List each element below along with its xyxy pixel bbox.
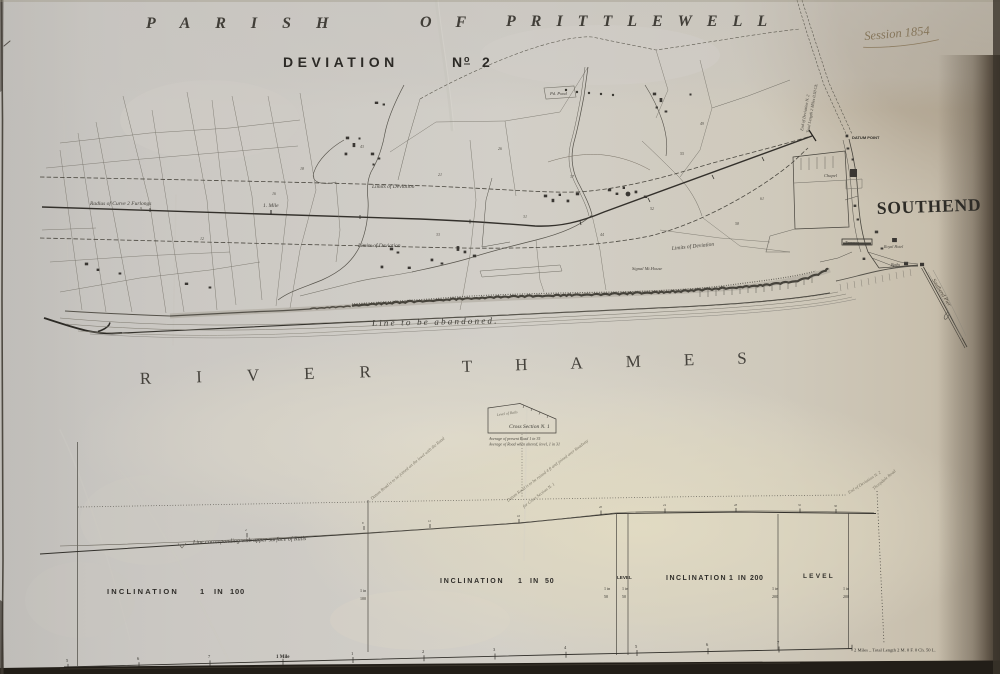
svg-text:Signal Mt.House: Signal Mt.House xyxy=(632,266,662,271)
svg-text:31: 31 xyxy=(523,214,527,219)
svg-text:50: 50 xyxy=(545,578,554,585)
svg-text:26: 26 xyxy=(498,146,502,151)
svg-text:1 in: 1 in xyxy=(604,586,610,591)
svg-text:32: 32 xyxy=(798,503,802,507)
svg-text:Radius of Curve 2 Furlongs: Radius of Curve 2 Furlongs xyxy=(89,200,151,207)
svg-text:Royal Hotel: Royal Hotel xyxy=(883,244,904,249)
svg-text:50: 50 xyxy=(604,594,608,599)
svg-text:IN: IN xyxy=(738,575,747,582)
svg-text:100: 100 xyxy=(230,587,245,596)
svg-text:12: 12 xyxy=(200,236,204,241)
svg-text:52: 52 xyxy=(650,206,654,211)
svg-text:24: 24 xyxy=(663,503,667,507)
svg-text:DEVIATION: DEVIATION xyxy=(283,54,399,70)
svg-text:1: 1 xyxy=(729,575,733,582)
svg-text:16: 16 xyxy=(272,191,276,196)
svg-text:12: 12 xyxy=(428,519,432,523)
svg-text:33: 33 xyxy=(436,232,440,237)
svg-text:PRITTLEWELL: PRITTLEWELL xyxy=(505,13,782,30)
svg-text:16: 16 xyxy=(517,514,521,518)
svg-text:LEVEL: LEVEL xyxy=(803,573,835,580)
svg-text:Limits of Deviation: Limits of Deviation xyxy=(357,242,401,249)
svg-text:1 Mile: 1 Mile xyxy=(276,655,290,660)
svg-text:1 in: 1 in xyxy=(772,586,778,591)
svg-text:1 in: 1 in xyxy=(360,588,366,593)
svg-text:Terrace: Terrace xyxy=(845,240,859,245)
svg-text:DATUM POINT: DATUM POINT xyxy=(852,135,880,140)
svg-text:43: 43 xyxy=(360,144,364,149)
svg-text:LEVEL: LEVEL xyxy=(617,575,632,580)
svg-text:58: 58 xyxy=(735,221,739,226)
svg-text:36: 36 xyxy=(834,504,838,508)
svg-text:INCLINATION: INCLINATION xyxy=(107,587,179,596)
svg-text:2: 2 xyxy=(482,54,490,70)
svg-text:IN: IN xyxy=(530,578,539,585)
svg-text:200: 200 xyxy=(750,575,763,582)
svg-text:61: 61 xyxy=(760,196,764,201)
svg-text:28: 28 xyxy=(734,503,738,507)
svg-text:Pd. Pond: Pd. Pond xyxy=(549,91,567,96)
svg-text:Average of present Road 1 in 3: Average of present Road 1 in 35 xyxy=(488,436,540,441)
svg-text:200: 200 xyxy=(772,594,778,599)
svg-text:1: 1 xyxy=(351,651,353,656)
svg-text:Baths: Baths xyxy=(891,262,901,267)
svg-text:1. Mile: 1. Mile xyxy=(263,203,279,209)
svg-text:Cross Section N. 1: Cross Section N. 1 xyxy=(509,424,550,430)
svg-text:2: 2 xyxy=(422,649,424,654)
svg-text:IN: IN xyxy=(214,587,224,596)
svg-text:1: 1 xyxy=(518,578,522,585)
svg-text:INCLINATION: INCLINATION xyxy=(440,578,504,585)
svg-text:o: o xyxy=(464,54,470,64)
svg-text:Limits of Deviation: Limits of Deviation xyxy=(371,183,415,190)
svg-text:1 in: 1 in xyxy=(843,586,849,591)
svg-text:50: 50 xyxy=(622,594,626,599)
svg-text:SOUTHEND: SOUTHEND xyxy=(876,194,981,218)
svg-text:OF: OF xyxy=(420,14,490,31)
svg-text:44: 44 xyxy=(600,232,604,237)
svg-text:Chapel: Chapel xyxy=(824,173,838,178)
svg-text:20: 20 xyxy=(599,505,603,509)
svg-text:18: 18 xyxy=(300,166,304,171)
svg-text:INCLINATION: INCLINATION xyxy=(666,575,727,582)
svg-text:21: 21 xyxy=(438,172,442,177)
svg-text:55: 55 xyxy=(680,151,684,156)
svg-text:1 in: 1 in xyxy=(622,586,628,591)
svg-text:100: 100 xyxy=(360,596,366,601)
svg-text:PARISH: PARISH xyxy=(145,15,354,32)
svg-text:200: 200 xyxy=(843,594,849,599)
svg-text:2 Miles _ Total Length 2 M. 0: 2 Miles _ Total Length 2 M. 0 F. 0 Ch. 5… xyxy=(854,648,936,653)
svg-text:49: 49 xyxy=(700,121,704,126)
svg-text:1: 1 xyxy=(200,587,204,596)
